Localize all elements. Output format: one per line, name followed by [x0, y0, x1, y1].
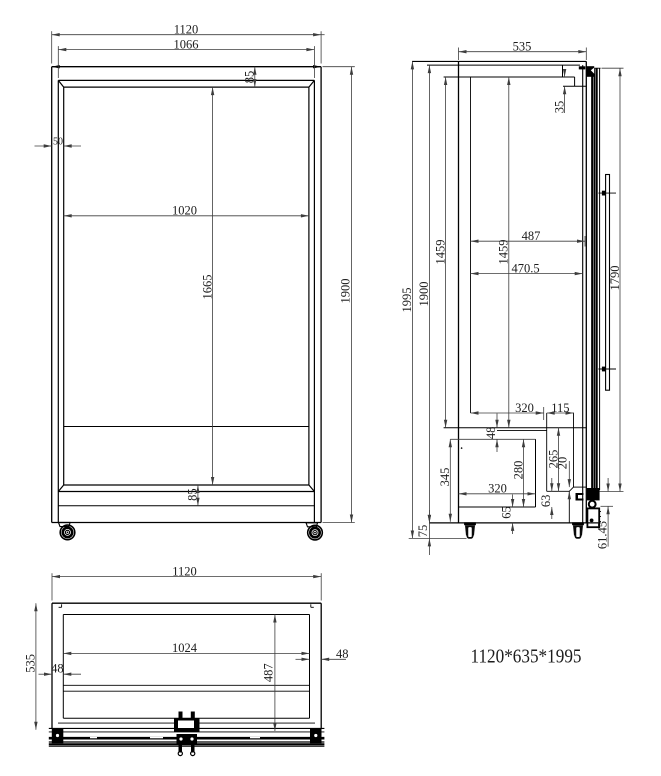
- svg-text:1120*635*1995: 1120*635*1995: [471, 647, 582, 668]
- svg-text:535: 535: [24, 654, 38, 673]
- svg-text:1066: 1066: [174, 37, 199, 51]
- svg-text:85: 85: [186, 488, 200, 501]
- svg-text:1900: 1900: [338, 279, 352, 304]
- svg-text:48: 48: [484, 427, 498, 440]
- svg-text:1665: 1665: [200, 275, 214, 300]
- svg-text:115: 115: [551, 401, 569, 415]
- svg-text:470.5: 470.5: [511, 261, 539, 275]
- svg-text:535: 535: [513, 40, 532, 54]
- svg-text:1900: 1900: [417, 282, 431, 307]
- svg-text:75: 75: [416, 525, 430, 538]
- svg-text:85: 85: [243, 71, 257, 84]
- svg-text:1120: 1120: [174, 23, 199, 37]
- svg-text:1020: 1020: [172, 204, 197, 218]
- svg-text:1024: 1024: [172, 641, 198, 655]
- svg-text:48: 48: [51, 662, 64, 676]
- svg-text:320: 320: [488, 482, 507, 496]
- svg-text:487: 487: [522, 229, 541, 243]
- svg-text:345: 345: [438, 468, 452, 487]
- svg-text:487: 487: [262, 663, 276, 682]
- svg-text:1459: 1459: [433, 240, 447, 265]
- svg-text:35: 35: [553, 101, 567, 114]
- svg-text:65: 65: [500, 506, 514, 519]
- svg-text:1120: 1120: [172, 564, 197, 578]
- svg-text:63: 63: [539, 495, 553, 508]
- svg-text:1995: 1995: [400, 288, 414, 313]
- svg-text:61.45: 61.45: [596, 521, 610, 549]
- svg-text:280: 280: [511, 461, 525, 480]
- svg-text:1790: 1790: [608, 266, 622, 291]
- svg-text:50: 50: [53, 136, 63, 147]
- svg-text:48: 48: [336, 647, 349, 661]
- svg-text:20: 20: [556, 457, 570, 470]
- svg-text:320: 320: [515, 401, 534, 415]
- svg-text:1459: 1459: [497, 239, 511, 264]
